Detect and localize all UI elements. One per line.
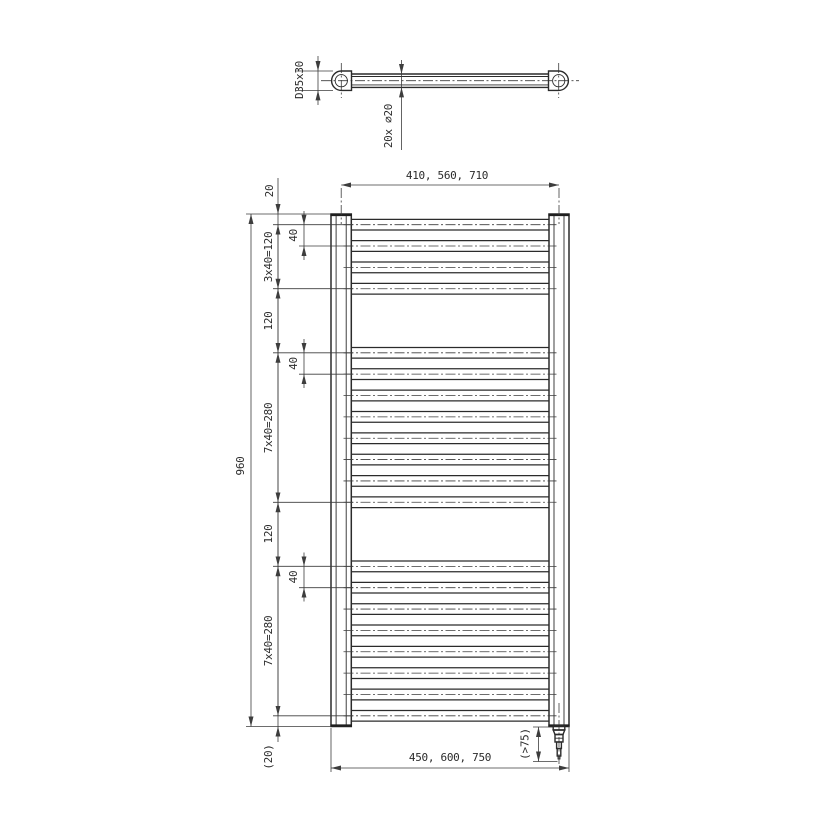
rung xyxy=(344,454,557,465)
rung xyxy=(344,283,557,294)
bottom-width-dimension: 450, 600, 750 xyxy=(331,726,569,772)
top-width-dimension: 410, 560, 710 xyxy=(341,169,559,224)
left-dimension-chain: 20 3x40=120 120 7x40=280 120 7x40=280 (2… xyxy=(262,178,278,770)
rung xyxy=(344,433,557,444)
gap-upper-label: 120 xyxy=(262,312,275,331)
rung xyxy=(344,561,557,572)
top-view-section: D35x30 20x ⌀20 xyxy=(293,56,579,150)
pitch-label-3: 40 xyxy=(287,571,300,584)
heater-clearance-label: (>75) xyxy=(519,728,532,760)
heating-element xyxy=(553,703,565,764)
group-middle-label: 7x40=280 xyxy=(262,403,275,454)
fitting-dim-label: D35x30 xyxy=(293,61,306,99)
tube-dim-label: 20x ⌀20 xyxy=(382,104,395,148)
rung xyxy=(344,369,557,380)
overall-height-dimension: 960 xyxy=(234,214,331,727)
rung xyxy=(344,347,557,358)
top-offset-label: 20 xyxy=(263,185,276,198)
rung xyxy=(344,497,557,508)
bottom-width-label: 450, 600, 750 xyxy=(409,751,491,764)
overall-height-label: 960 xyxy=(234,457,247,476)
rung xyxy=(344,412,557,423)
rung xyxy=(344,710,557,721)
rung xyxy=(344,390,557,401)
rung xyxy=(344,625,557,636)
front-view: 410, 560, 710 450, 600, 750 960 xyxy=(234,169,570,772)
rung xyxy=(344,476,557,487)
group-top-label: 3x40=120 xyxy=(262,232,275,283)
rung xyxy=(344,604,557,615)
rung-pitch-dimensions: 40 40 40 xyxy=(287,211,304,602)
rung xyxy=(344,219,557,230)
left-collector-tube xyxy=(330,214,352,727)
group-bottom-label: 7x40=280 xyxy=(262,616,275,667)
rung xyxy=(344,241,557,252)
pitch-label-1: 40 xyxy=(287,229,300,242)
gap-lower-label: 120 xyxy=(262,525,275,544)
rung xyxy=(344,668,557,679)
top-width-label: 410, 560, 710 xyxy=(406,169,488,182)
drawing-canvas: D35x30 20x ⌀20 xyxy=(0,0,830,830)
rung-array xyxy=(344,219,557,721)
chain-extension-lines xyxy=(273,225,353,716)
heater-clearance-dimension: (>75) xyxy=(519,727,558,762)
rung xyxy=(344,582,557,593)
towel-radiator-technical-drawing: D35x30 20x ⌀20 xyxy=(0,0,830,830)
bottom-offset-label: (20) xyxy=(262,744,275,769)
pitch-label-2: 40 xyxy=(287,357,300,370)
rung xyxy=(344,262,557,273)
rung xyxy=(344,689,557,700)
right-collector-tube xyxy=(548,214,569,727)
rung xyxy=(344,646,557,657)
